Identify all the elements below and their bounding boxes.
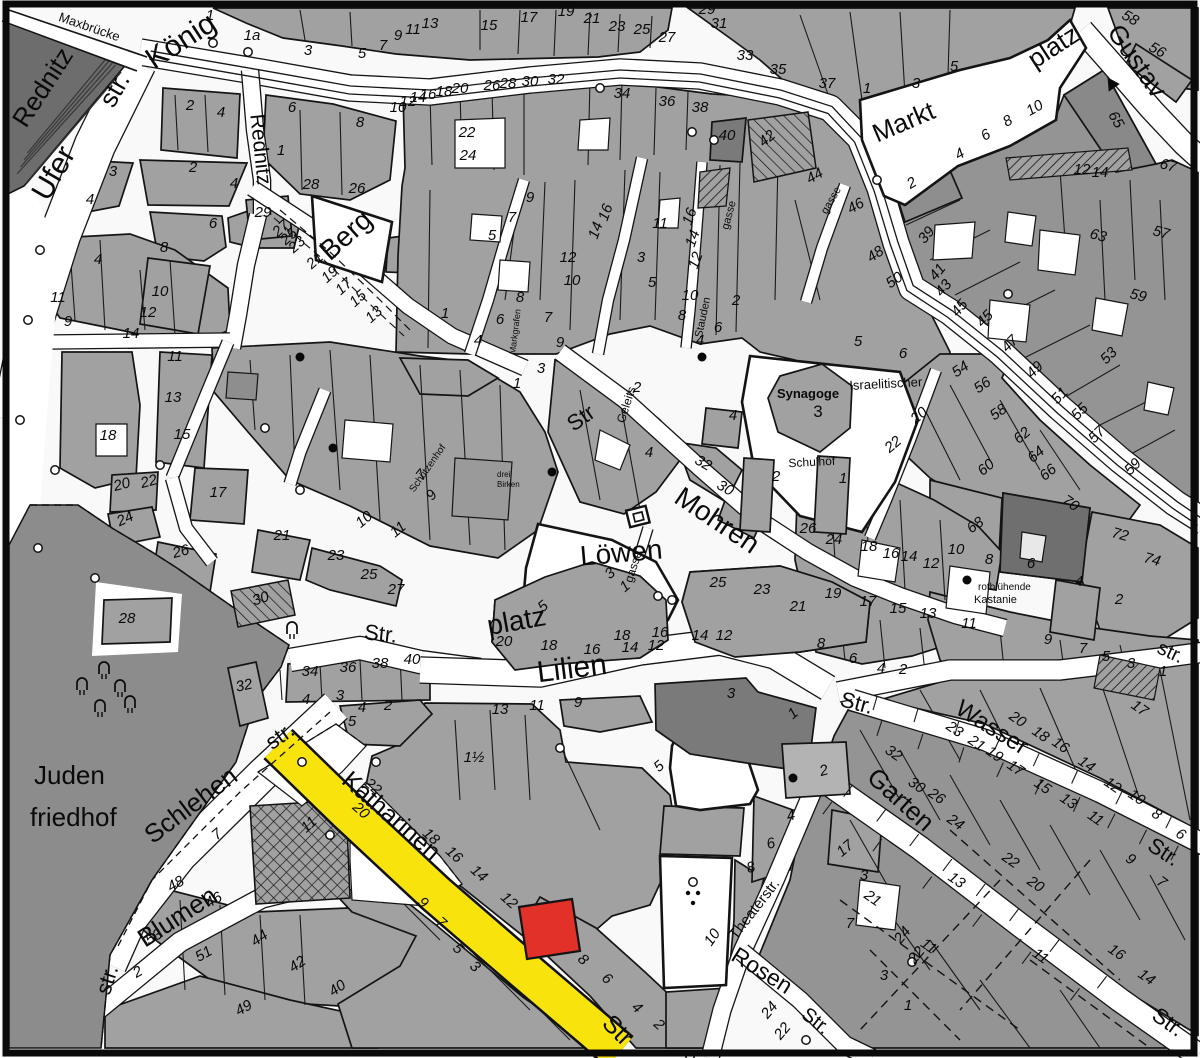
- svg-text:4: 4: [645, 444, 653, 461]
- svg-text:40: 40: [719, 127, 736, 144]
- svg-text:4: 4: [729, 407, 737, 424]
- svg-text:6: 6: [209, 215, 218, 232]
- svg-text:2: 2: [731, 292, 741, 309]
- svg-text:9: 9: [556, 334, 565, 351]
- svg-text:6: 6: [1027, 555, 1036, 572]
- svg-text:Juden: Juden: [34, 760, 105, 790]
- svg-text:8: 8: [678, 307, 687, 324]
- svg-text:3: 3: [336, 687, 345, 704]
- svg-text:3: 3: [880, 967, 889, 984]
- svg-text:Str.: Str.: [363, 619, 398, 647]
- svg-text:11: 11: [961, 615, 977, 632]
- svg-text:4: 4: [217, 104, 225, 121]
- svg-text:16: 16: [420, 86, 437, 103]
- svg-text:10: 10: [152, 283, 169, 300]
- svg-text:4: 4: [696, 332, 704, 349]
- svg-text:34: 34: [614, 85, 631, 102]
- svg-text:4: 4: [474, 332, 482, 349]
- svg-text:13: 13: [422, 15, 439, 32]
- svg-text:18: 18: [541, 637, 558, 654]
- svg-text:3: 3: [727, 685, 736, 702]
- svg-text:10: 10: [948, 541, 965, 558]
- svg-text:8: 8: [516, 289, 525, 306]
- svg-text:17: 17: [521, 9, 538, 26]
- svg-text:5: 5: [854, 333, 863, 350]
- svg-text:18: 18: [861, 538, 878, 555]
- svg-text:4: 4: [94, 251, 102, 268]
- svg-text:14: 14: [1092, 164, 1109, 181]
- svg-text:21: 21: [273, 527, 291, 544]
- svg-text:3: 3: [637, 249, 646, 266]
- svg-text:20: 20: [495, 633, 513, 650]
- svg-text:18: 18: [614, 627, 631, 644]
- svg-text:13: 13: [165, 389, 182, 406]
- svg-text:4: 4: [302, 691, 310, 708]
- svg-text:3: 3: [860, 867, 869, 884]
- svg-text:3: 3: [304, 42, 313, 59]
- svg-text:7: 7: [1079, 640, 1088, 657]
- svg-text:36: 36: [659, 93, 676, 110]
- svg-text:21: 21: [583, 10, 601, 27]
- svg-text:rotblühende: rotblühende: [978, 582, 1031, 593]
- svg-text:14: 14: [901, 548, 918, 565]
- svg-text:4: 4: [358, 699, 366, 716]
- svg-text:17: 17: [860, 593, 877, 610]
- svg-text:4: 4: [877, 660, 885, 677]
- svg-text:friedhof: friedhof: [30, 802, 117, 832]
- svg-text:6: 6: [288, 99, 297, 116]
- svg-text:33: 33: [737, 47, 754, 64]
- svg-text:2: 2: [188, 159, 198, 176]
- svg-text:2: 2: [898, 661, 908, 678]
- svg-text:14: 14: [692, 627, 709, 644]
- svg-text:21: 21: [789, 598, 807, 615]
- svg-text:1½: 1½: [464, 749, 485, 766]
- svg-text:7: 7: [379, 37, 388, 54]
- svg-text:12: 12: [923, 555, 940, 572]
- svg-text:11: 11: [652, 215, 668, 232]
- svg-text:26: 26: [348, 180, 366, 197]
- svg-text:10: 10: [564, 272, 581, 289]
- svg-text:23: 23: [753, 581, 771, 598]
- svg-text:2: 2: [185, 97, 195, 114]
- svg-text:2: 2: [632, 379, 642, 396]
- svg-text:5: 5: [648, 274, 657, 291]
- svg-text:29: 29: [254, 204, 272, 221]
- svg-text:16: 16: [584, 641, 601, 658]
- svg-text:5: 5: [1102, 648, 1111, 665]
- svg-text:9: 9: [1044, 631, 1053, 648]
- svg-text:15: 15: [481, 17, 498, 34]
- svg-text:38: 38: [372, 655, 389, 672]
- svg-text:5: 5: [488, 227, 497, 244]
- svg-text:12: 12: [1074, 161, 1091, 178]
- svg-text:6: 6: [496, 311, 505, 328]
- svg-text:11: 11: [50, 289, 66, 306]
- svg-text:10: 10: [682, 287, 699, 304]
- svg-text:27: 27: [658, 29, 676, 46]
- svg-text:Birken: Birken: [497, 480, 520, 489]
- svg-text:3: 3: [1127, 655, 1136, 672]
- svg-text:1: 1: [513, 375, 521, 392]
- svg-text:1: 1: [206, 7, 214, 24]
- svg-text:3: 3: [537, 360, 546, 377]
- svg-text:15: 15: [890, 600, 907, 617]
- svg-text:13: 13: [492, 701, 509, 718]
- svg-text:35: 35: [770, 61, 787, 78]
- svg-text:9: 9: [64, 313, 73, 330]
- svg-text:26: 26: [483, 77, 501, 94]
- svg-text:38: 38: [692, 99, 709, 116]
- svg-text:11: 11: [405, 21, 421, 38]
- svg-text:5: 5: [358, 45, 367, 62]
- svg-text:25: 25: [709, 574, 727, 591]
- svg-text:9: 9: [526, 189, 535, 206]
- svg-text:7: 7: [846, 915, 855, 932]
- svg-text:27: 27: [387, 581, 405, 598]
- svg-text:36: 36: [340, 659, 357, 676]
- svg-text:3: 3: [912, 75, 921, 92]
- svg-text:11: 11: [529, 697, 545, 714]
- svg-text:31: 31: [711, 15, 728, 32]
- svg-text:23: 23: [327, 547, 345, 564]
- svg-text:24: 24: [459, 147, 477, 164]
- svg-text:8: 8: [356, 114, 365, 131]
- svg-text:16: 16: [652, 624, 669, 641]
- svg-text:1: 1: [1159, 663, 1167, 680]
- svg-text:11: 11: [167, 348, 183, 365]
- svg-text:5: 5: [348, 713, 357, 730]
- svg-text:22: 22: [458, 124, 476, 141]
- svg-text:18: 18: [436, 83, 453, 100]
- svg-text:37: 37: [819, 75, 836, 92]
- svg-text:28: 28: [302, 176, 320, 193]
- svg-text:1: 1: [839, 470, 847, 487]
- svg-text:12: 12: [560, 249, 577, 266]
- svg-text:Schulhof: Schulhof: [788, 454, 836, 470]
- svg-text:drei: drei: [497, 470, 511, 479]
- svg-text:6: 6: [849, 650, 858, 667]
- svg-text:19: 19: [825, 585, 842, 602]
- svg-text:7: 7: [508, 209, 517, 226]
- svg-text:25: 25: [633, 21, 651, 38]
- svg-text:16: 16: [883, 545, 900, 562]
- svg-text:6: 6: [714, 319, 723, 336]
- svg-text:30: 30: [522, 73, 539, 90]
- svg-text:13: 13: [920, 605, 937, 622]
- svg-text:3: 3: [109, 163, 118, 180]
- svg-text:8: 8: [985, 551, 994, 568]
- svg-text:4: 4: [86, 191, 94, 208]
- svg-text:1: 1: [277, 142, 285, 159]
- svg-text:4: 4: [230, 175, 238, 192]
- svg-text:5: 5: [950, 58, 959, 75]
- svg-text:2: 2: [1114, 591, 1124, 608]
- svg-text:25: 25: [360, 566, 378, 583]
- svg-text:28: 28: [499, 75, 517, 92]
- svg-text:12: 12: [716, 627, 733, 644]
- svg-text:6: 6: [899, 345, 908, 362]
- svg-text:18: 18: [100, 427, 117, 444]
- svg-text:2: 2: [771, 468, 781, 485]
- svg-text:34: 34: [302, 663, 319, 680]
- svg-text:8: 8: [817, 635, 826, 652]
- svg-text:23: 23: [608, 18, 626, 35]
- svg-text:32: 32: [548, 71, 565, 88]
- svg-text:1: 1: [441, 305, 449, 322]
- svg-text:17: 17: [210, 484, 227, 501]
- svg-text:9: 9: [394, 27, 403, 44]
- svg-text:1: 1: [863, 80, 871, 97]
- svg-text:7: 7: [544, 309, 553, 326]
- svg-text:12: 12: [140, 304, 157, 321]
- svg-text:26: 26: [799, 520, 817, 537]
- svg-text:24: 24: [825, 531, 843, 548]
- svg-text:2: 2: [383, 697, 393, 714]
- svg-text:Synagoge: Synagoge: [777, 386, 839, 401]
- svg-text:1a: 1a: [244, 27, 261, 44]
- svg-text:Kastanie: Kastanie: [974, 594, 1017, 606]
- svg-text:8: 8: [160, 239, 169, 256]
- svg-text:1: 1: [904, 997, 912, 1014]
- svg-text:14: 14: [123, 325, 140, 342]
- svg-text:9: 9: [574, 694, 583, 711]
- svg-text:3: 3: [813, 402, 822, 421]
- svg-text:40: 40: [404, 651, 421, 668]
- svg-text:28: 28: [118, 610, 136, 627]
- svg-text:15: 15: [174, 426, 191, 443]
- svg-text:4: 4: [1075, 573, 1083, 590]
- svg-text:20: 20: [451, 80, 469, 97]
